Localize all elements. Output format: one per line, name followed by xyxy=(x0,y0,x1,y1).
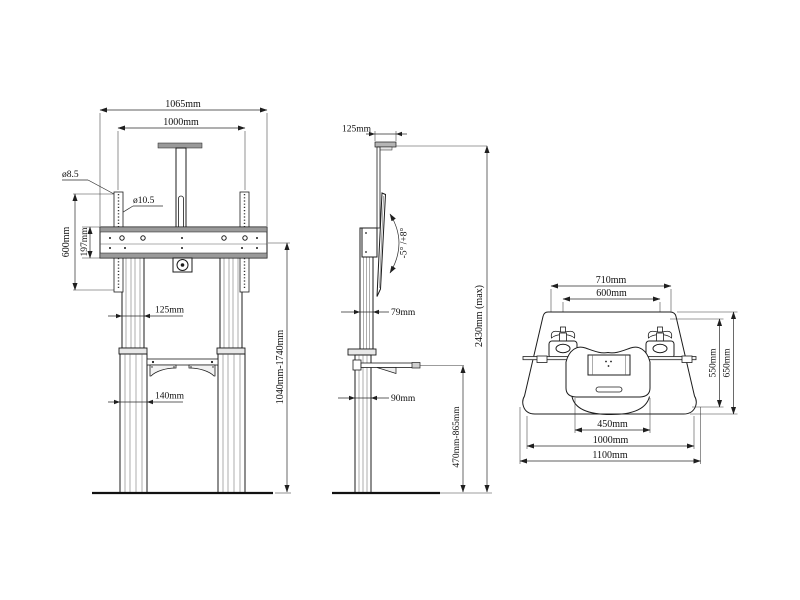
dim-label-hole-10-5: ø10.5 xyxy=(133,196,155,206)
dim-label-710: 710mm xyxy=(596,275,627,286)
dim-side-column-depth: 79mm xyxy=(341,308,416,318)
plate-slot xyxy=(596,387,622,392)
dim-label-650: 650mm xyxy=(723,348,733,378)
dim-label-197: 197mm xyxy=(80,227,90,257)
lower-column-right xyxy=(218,354,245,493)
mount-head-side xyxy=(362,228,377,257)
dim-label-79: 79mm xyxy=(391,308,416,318)
callout-hole-small: ø8.5 xyxy=(62,170,114,194)
dim-label-450: 450mm xyxy=(597,419,628,430)
side-view: 125mm -5° /+8° xyxy=(332,125,492,494)
dim-label-height-range: 1040mm-1740mm xyxy=(275,330,286,405)
lower-column-left xyxy=(120,354,147,493)
dim-side-top-depth: 125mm xyxy=(342,125,407,142)
dim-label-hole-8-5: ø8.5 xyxy=(62,170,79,180)
crossbar xyxy=(100,227,267,258)
dim-label-600-base: 600mm xyxy=(596,288,627,299)
lower-column-side xyxy=(355,355,371,493)
upper-column-right xyxy=(220,258,242,348)
dim-label-1100: 1100mm xyxy=(592,450,627,461)
callout-hole-large: ø10.5 xyxy=(120,196,163,214)
rod-clip-left xyxy=(537,356,547,363)
dim-side-shelf-height-range: 470mm-865mm xyxy=(452,366,463,492)
rod-clip-right xyxy=(682,356,692,363)
dim-label-1000-front: 1000mm xyxy=(163,117,199,128)
dim-label-125-side: 125mm xyxy=(342,125,372,135)
technical-drawing-canvas: 1065mm 1000mm 600mm 197mm xyxy=(0,0,800,600)
dim-label-1000-base: 1000mm xyxy=(593,435,629,446)
upper-column-left xyxy=(122,258,144,348)
tilt-range-indicator: -5° /+8° xyxy=(390,214,410,273)
dim-label-140: 140mm xyxy=(155,392,185,402)
dim-label-90: 90mm xyxy=(391,394,416,404)
center-knob xyxy=(173,258,192,272)
front-shelf xyxy=(147,359,218,376)
dim-label-125-front: 125mm xyxy=(155,306,185,316)
column-collar-left xyxy=(119,348,147,354)
dim-side-lower-column-depth: 90mm xyxy=(338,394,416,404)
top-view: 710mm 600mm xyxy=(520,275,738,464)
center-bracket-plate xyxy=(588,355,630,375)
dim-label-1065: 1065mm xyxy=(165,99,201,110)
dim-label-max-height: 2430mm (max) xyxy=(474,285,485,347)
column-collar-right xyxy=(217,348,245,354)
dim-label-550: 550mm xyxy=(709,348,719,378)
dim-label-shelf-range: 470mm-865mm xyxy=(452,406,462,468)
support-arm-side xyxy=(377,147,380,228)
caster-right xyxy=(646,327,674,358)
front-view: 1065mm 1000mm 600mm 197mm xyxy=(61,99,291,493)
dim-label-tilt: -5° /+8° xyxy=(399,227,410,258)
tv-stand-technical-drawing: 1065mm 1000mm 600mm 197mm xyxy=(0,0,800,600)
dim-side-max-height: 2430mm (max) xyxy=(474,146,487,492)
top-bracket-front xyxy=(158,143,202,229)
column-collar-side xyxy=(348,349,376,355)
dim-label-600-front: 600mm xyxy=(61,227,72,258)
dim-front-height-range: 1040mm-1740mm xyxy=(268,243,291,493)
dim-front-upper-column-width: 125mm xyxy=(108,306,185,319)
